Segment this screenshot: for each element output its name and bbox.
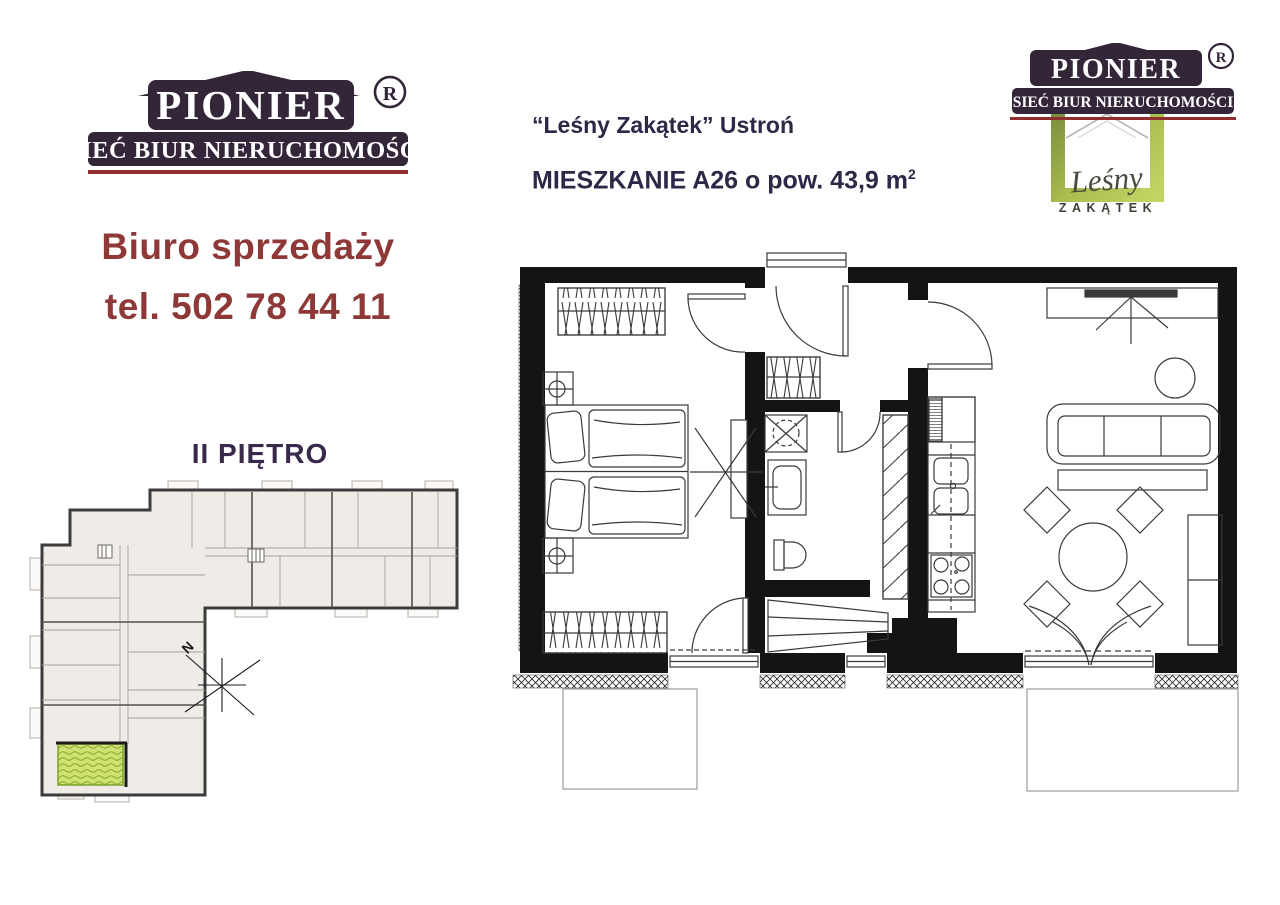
registered-trademark-icon: R	[375, 77, 405, 107]
hall-shelving	[883, 415, 908, 599]
living-balcony	[1027, 689, 1238, 791]
living-room-door	[928, 302, 992, 369]
pionier-lesny-logo: PIONIER R SIEĆ BIUR NIERUCHOMOŚCI Leśny …	[1005, 35, 1250, 225]
sales-phone: tel. 502 78 44 11	[88, 286, 408, 328]
fridge-icon	[928, 397, 975, 442]
lesny-script-text: Leśny	[1068, 160, 1144, 200]
pionier-name: PIONIER	[156, 82, 345, 128]
pionier-logo-main: PIONIER R SIEĆ BIUR NIERUCHOMOŚCI	[80, 58, 420, 180]
apartment-title-text: MIESZKANIE A26 o pow. 43,9 m	[532, 166, 908, 194]
bedroom-balcony-door	[670, 598, 758, 667]
building-overview-plan: N	[20, 475, 470, 815]
zakatek-caps-text: ZAKĄTEK	[1059, 201, 1157, 215]
twin-beds	[545, 405, 688, 538]
apartment-area-superscript: 2	[908, 166, 916, 182]
flyer-page: PIONIER R SIEĆ BIUR NIERUCHOMOŚCI Biuro …	[0, 0, 1280, 905]
apartment-title: MIESZKANIE A26 o pow. 43,9 m2	[532, 166, 916, 195]
pionier-network-small: SIEĆ BIUR NIERUCHOMOŚCI	[1013, 94, 1233, 111]
registered-trademark-icon-small: R	[1209, 44, 1233, 68]
bedroom-balcony	[563, 689, 697, 789]
small-window	[847, 656, 885, 667]
wardrobe-top	[558, 288, 665, 335]
hall-closet	[767, 357, 820, 398]
living-room	[1024, 288, 1222, 665]
sales-office-line: Biuro sprzedaży	[88, 226, 408, 268]
dining-set	[1024, 487, 1163, 627]
side-table-icon	[1155, 358, 1195, 398]
pionier-red-rule	[88, 170, 408, 174]
project-name: “Leśny Zakątek” Ustroń	[532, 112, 794, 139]
shelf-unit-icon	[1188, 515, 1222, 645]
washbasin-icon	[765, 460, 806, 515]
radiator-top-icon	[543, 372, 573, 405]
wardrobe-bottom	[543, 612, 667, 653]
registered-letter-small: R	[1216, 50, 1227, 66]
floor-label: II PIĘTRO	[150, 438, 370, 470]
bathroom-door	[838, 412, 880, 452]
kitchen	[928, 397, 975, 612]
kitchen-sink-icon	[931, 458, 968, 514]
pionier-red-rule-small	[1010, 117, 1236, 120]
toilet-icon	[774, 540, 806, 570]
highlighted-apartment-a26	[56, 743, 127, 787]
bedroom-door	[688, 294, 745, 352]
sofa-icon	[1047, 404, 1220, 464]
pionier-name-small: PIONIER	[1051, 54, 1181, 85]
registered-letter: R	[383, 83, 398, 105]
balconies	[563, 689, 1238, 791]
tv-unit-icon	[1047, 288, 1218, 344]
apartment-floor-plan	[500, 248, 1245, 808]
washing-machine-icon	[765, 415, 807, 452]
radiator-bottom-icon	[543, 538, 573, 573]
coffee-table-icon	[1058, 470, 1207, 490]
pionier-network: SIEĆ BIUR NIERUCHOMOŚCI	[80, 136, 420, 164]
bedroom	[543, 288, 762, 653]
entrance-door	[767, 253, 848, 356]
